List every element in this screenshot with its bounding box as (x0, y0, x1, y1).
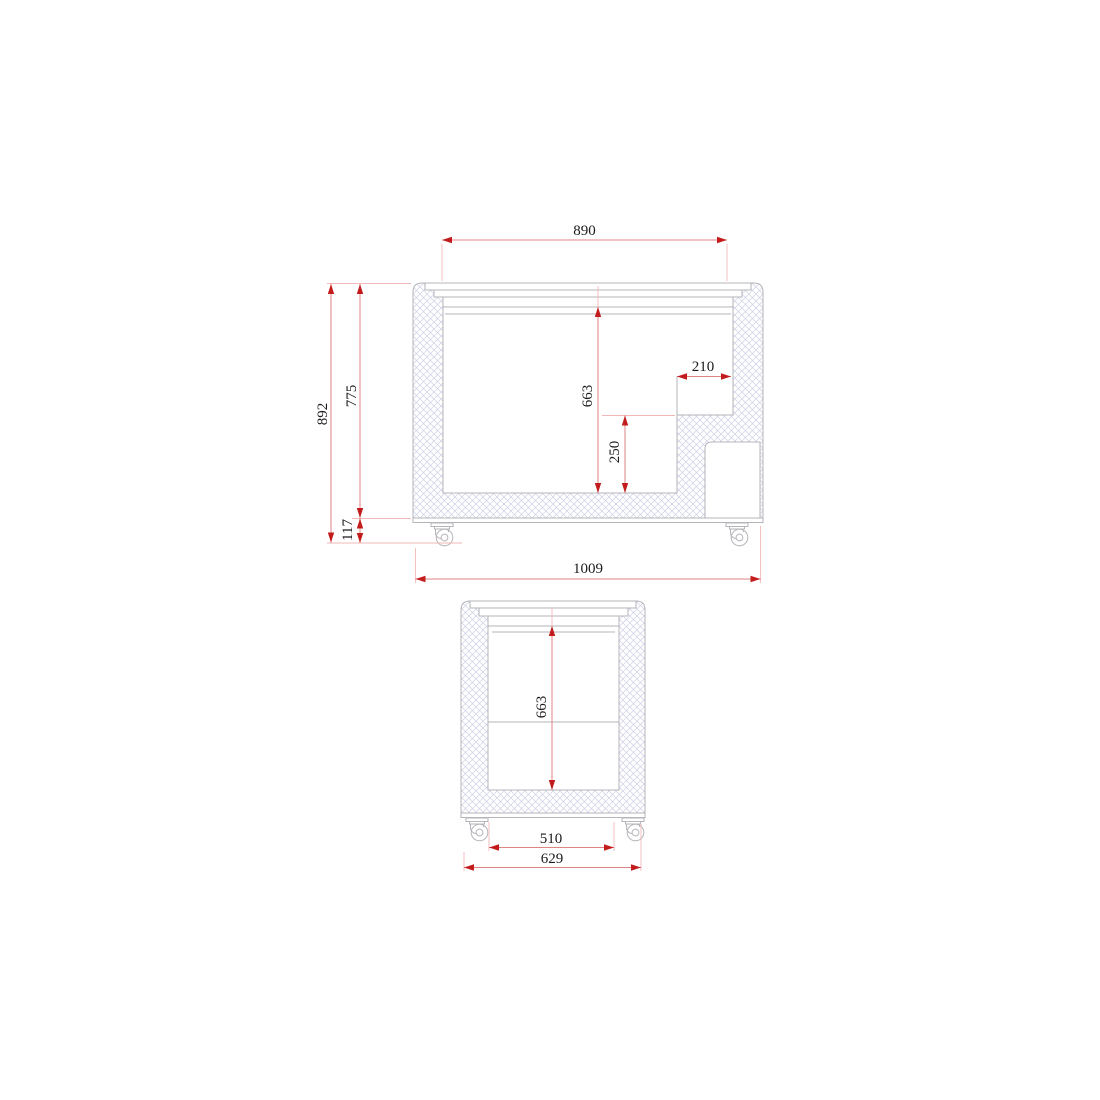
dimension-label: 1009 (573, 561, 603, 577)
dimension-1009: 1009 (416, 526, 761, 583)
arrowhead (604, 844, 614, 850)
arrowhead (328, 533, 334, 543)
arrowhead (416, 576, 426, 582)
dimension-label: 775 (344, 385, 360, 408)
dimension-510: 510 (489, 822, 614, 851)
arrowhead (442, 237, 452, 243)
dimension-label: 510 (540, 831, 563, 847)
dimension-label: 663 (534, 696, 550, 719)
arrowhead (357, 519, 363, 529)
dimension-label: 663 (580, 385, 596, 408)
dimension-label: 210 (692, 359, 715, 375)
arrowhead (357, 284, 363, 294)
front-section-view: 890 892 775 117 (315, 223, 763, 583)
arrowhead (357, 533, 363, 543)
arrowhead (631, 864, 641, 870)
caster-left (466, 818, 488, 841)
dimension-890: 890 (442, 223, 727, 281)
dimension-775: 775 (344, 284, 411, 519)
dimension-label: 890 (573, 223, 596, 239)
caster-right (726, 523, 748, 546)
arrowhead (717, 237, 727, 243)
inner-cavity (488, 626, 619, 790)
dimension-label: 117 (340, 519, 356, 541)
compressor-compartment (705, 442, 760, 518)
dimension-117: 117 (340, 519, 363, 544)
lid-step-profile (425, 283, 751, 307)
arrowhead (751, 576, 761, 582)
arrowhead (489, 844, 499, 850)
base-plate (413, 518, 763, 523)
base-plate (461, 813, 645, 818)
dimension-label: 250 (607, 441, 623, 464)
arrowhead (464, 864, 474, 870)
lid-step-profile (470, 601, 636, 626)
dimension-label: 629 (541, 851, 564, 867)
side-section-view: 663 510 629 (461, 601, 645, 871)
arrowhead (357, 508, 363, 518)
caster-left (431, 523, 453, 546)
arrowhead (328, 284, 334, 294)
dimension-label: 892 (315, 403, 331, 426)
freezer-dimension-drawing: 890 892 775 117 (0, 0, 1100, 1100)
